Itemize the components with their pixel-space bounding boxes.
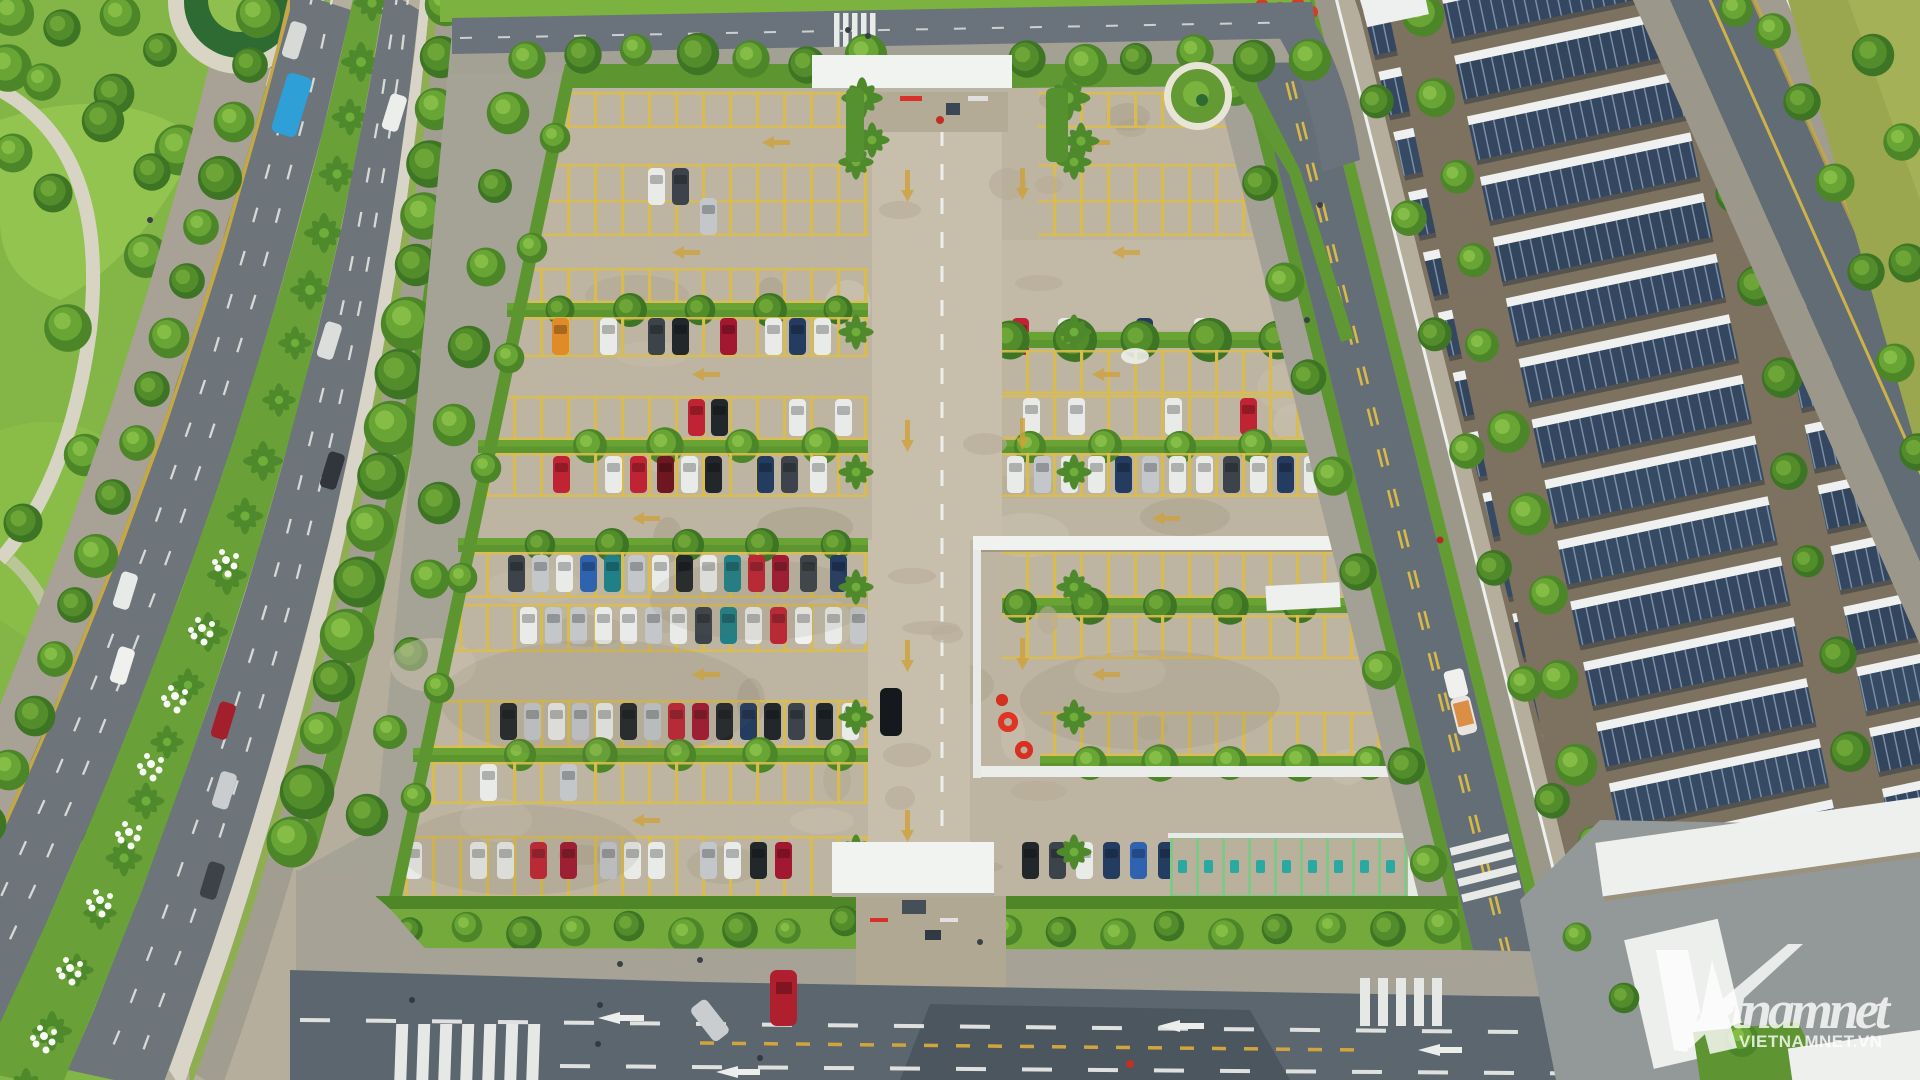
svg-text:ietnamnet: ietnamnet — [1700, 980, 1892, 1040]
svg-text:VIETNAMNET.VN: VIETNAMNET.VN — [1739, 1032, 1882, 1051]
